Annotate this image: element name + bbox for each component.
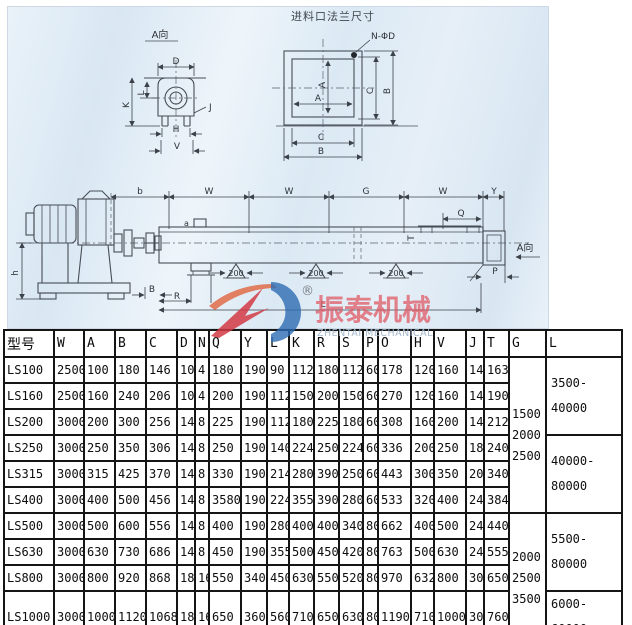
value-cell: 8: [195, 435, 209, 461]
value-cell: 384: [484, 487, 509, 513]
value-cell: 456: [146, 487, 177, 513]
support-dim-1: 200: [228, 269, 243, 278]
value-cell: 662: [378, 513, 411, 539]
value-cell: 600: [115, 513, 146, 539]
value-cell: 150: [289, 383, 314, 409]
model-cell: LS160: [4, 383, 54, 409]
motor: [34, 205, 76, 243]
value-cell: 650: [314, 591, 339, 625]
value-cell: 868: [146, 565, 177, 591]
value-cell: 214: [267, 461, 289, 487]
value-cell: 920: [115, 565, 146, 591]
value-cell: 533: [378, 487, 411, 513]
drawing-panel: A向 D L K: [7, 6, 549, 329]
value-cell: 555: [484, 539, 509, 565]
value-cell: 970: [378, 565, 411, 591]
value-cell: 240: [484, 435, 509, 461]
value-cell: 355: [267, 539, 289, 565]
value-cell: 270: [378, 383, 411, 409]
column-header-O-13: O: [378, 330, 411, 357]
spec-table: 型号WABCDNQYLKRSPOHVJTGL LS100250010018014…: [3, 329, 623, 625]
dim-label-w2: W: [285, 187, 294, 197]
dim-label-j: J: [208, 103, 212, 113]
view-a-title: A向: [152, 28, 169, 41]
value-cell: 390: [314, 461, 339, 487]
value-cell: 8: [195, 513, 209, 539]
value-cell: 560: [267, 591, 289, 625]
value-cell: 190: [484, 383, 509, 409]
value-cell: 200: [84, 409, 115, 435]
column-header-N-5: N: [195, 330, 209, 357]
value-cell: 3000: [54, 435, 84, 461]
model-cell: LS250: [4, 435, 54, 461]
header-row: 型号WABCDNQYLKRSPOHVJTGL: [4, 330, 622, 357]
value-cell: 336: [378, 435, 411, 461]
l-group-cell: 6000-60000: [546, 591, 622, 625]
table-row-LS500: LS50030005006005561484001902804004003408…: [4, 513, 622, 539]
support-dim-2: 200: [308, 269, 323, 278]
value-cell: 190: [241, 513, 267, 539]
column-header-model: 型号: [4, 330, 54, 357]
value-cell: 250: [434, 435, 466, 461]
end-view-drawing: A向 D L K: [122, 28, 212, 154]
value-cell: 340: [484, 461, 509, 487]
value-cell: 650: [209, 591, 241, 625]
value-cell: 330: [209, 461, 241, 487]
column-header-J-16: J: [466, 330, 484, 357]
dim-label-b-bottom: B: [318, 147, 324, 157]
engineering-drawing: A向 D L K: [8, 7, 548, 328]
value-cell: 212: [484, 409, 509, 435]
value-cell: 425: [115, 461, 146, 487]
value-cell: 190: [241, 435, 267, 461]
value-cell: 178: [378, 357, 411, 383]
support-saddle-2: 200: [289, 264, 343, 278]
model-cell: LS1000: [4, 591, 54, 625]
value-cell: 18: [177, 565, 195, 591]
value-cell: 250: [209, 435, 241, 461]
value-cell: 2500: [54, 357, 84, 383]
value-cell: 60: [363, 409, 378, 435]
value-cell: 14: [466, 383, 484, 409]
value-cell: 800: [434, 565, 466, 591]
value-cell: 163: [484, 357, 509, 383]
value-cell: 200: [209, 383, 241, 409]
column-header-Q-6: Q: [209, 330, 241, 357]
value-cell: 14: [177, 435, 195, 461]
screenshot-root: A向 D L K: [0, 0, 632, 625]
value-cell: 500: [84, 513, 115, 539]
value-cell: 24: [466, 487, 484, 513]
value-cell: 224: [289, 435, 314, 461]
dim-label-c-right: C: [366, 88, 376, 94]
value-cell: 60: [363, 383, 378, 409]
dim-label-b-right: B: [383, 88, 393, 94]
value-cell: 18: [177, 591, 195, 625]
value-cell: 200: [314, 383, 339, 409]
value-cell: 18: [466, 435, 484, 461]
value-cell: 140: [267, 435, 289, 461]
value-cell: 180: [115, 357, 146, 383]
dim-label-c-bottom: C: [318, 133, 324, 143]
value-cell: 30: [466, 591, 484, 625]
column-header-C-3: C: [146, 330, 177, 357]
value-cell: 400: [289, 513, 314, 539]
value-cell: 420: [339, 539, 363, 565]
value-cell: 14: [177, 487, 195, 513]
value-cell: 550: [209, 565, 241, 591]
value-cell: 350: [434, 461, 466, 487]
l-group-cell: 5500-80000: [546, 513, 622, 591]
dim-label-h-width: H: [173, 125, 180, 135]
value-cell: 120: [411, 357, 434, 383]
flange-drawing: 进料口法兰尺寸 N-ΦD A A C B: [272, 9, 418, 161]
value-cell: 20: [466, 461, 484, 487]
value-cell: 1120: [115, 591, 146, 625]
dim-label-a-horizontal: A: [315, 94, 322, 104]
value-cell: 190: [241, 487, 267, 513]
value-cell: 340: [339, 513, 363, 539]
value-cell: 90: [267, 357, 289, 383]
model-cell: LS200: [4, 409, 54, 435]
value-cell: 3000: [54, 565, 84, 591]
value-cell: 60: [363, 461, 378, 487]
value-cell: 80: [363, 513, 378, 539]
value-cell: 60: [363, 487, 378, 513]
dim-label-b2: B: [149, 285, 155, 295]
model-cell: LS800: [4, 565, 54, 591]
value-cell: 8: [195, 409, 209, 435]
value-cell: 225: [209, 409, 241, 435]
dim-label-v: V: [174, 142, 181, 152]
dim-label-t: T: [407, 235, 417, 242]
column-header-K-9: K: [289, 330, 314, 357]
value-cell: 1068: [146, 591, 177, 625]
value-cell: 1190: [378, 591, 411, 625]
bolt-hole-label: N-ΦD: [371, 32, 395, 42]
value-cell: 400: [209, 513, 241, 539]
value-cell: 3000: [54, 461, 84, 487]
value-cell: 3000: [54, 487, 84, 513]
dim-label-l: L: [137, 90, 147, 95]
value-cell: 224: [267, 487, 289, 513]
value-cell: 730: [115, 539, 146, 565]
value-cell: 1000: [434, 591, 466, 625]
value-cell: 10: [177, 357, 195, 383]
value-cell: 710: [411, 591, 434, 625]
value-cell: 14: [177, 409, 195, 435]
value-cell: 400: [434, 487, 466, 513]
value-cell: 60: [363, 357, 378, 383]
value-cell: 112: [289, 357, 314, 383]
value-cell: 190: [241, 461, 267, 487]
column-header-B-2: B: [115, 330, 146, 357]
value-cell: 355: [289, 487, 314, 513]
value-cell: 360: [241, 591, 267, 625]
value-cell: 250: [339, 461, 363, 487]
g-group-cell: 200025003500: [509, 513, 546, 625]
model-cell: LS400: [4, 487, 54, 513]
l-group-cell: 3500-40000: [546, 357, 622, 435]
value-cell: 320: [411, 487, 434, 513]
column-header-D-4: D: [177, 330, 195, 357]
value-cell: 160: [434, 357, 466, 383]
value-cell: 8: [195, 487, 209, 513]
column-header-L-19: L: [546, 330, 622, 357]
value-cell: 340: [241, 565, 267, 591]
value-cell: 200: [434, 409, 466, 435]
column-header-G-18: G: [509, 330, 546, 357]
value-cell: 180: [339, 409, 363, 435]
value-cell: 650: [484, 565, 509, 591]
support-saddle-3: 200: [369, 264, 423, 278]
value-cell: 190: [241, 357, 267, 383]
model-cell: LS315: [4, 461, 54, 487]
dim-label-d: D: [173, 57, 180, 67]
column-header-V-15: V: [434, 330, 466, 357]
value-cell: 450: [314, 539, 339, 565]
value-cell: 24: [466, 513, 484, 539]
value-cell: 250: [314, 435, 339, 461]
dim-label-q: Q: [457, 209, 464, 219]
value-cell: 440: [484, 513, 509, 539]
value-cell: 160: [434, 383, 466, 409]
value-cell: 190: [241, 539, 267, 565]
value-cell: 14: [466, 357, 484, 383]
model-cell: LS630: [4, 539, 54, 565]
column-header-L-8: L: [267, 330, 289, 357]
value-cell: 686: [146, 539, 177, 565]
value-cell: 60: [363, 435, 378, 461]
value-cell: 14: [177, 461, 195, 487]
value-cell: 763: [378, 539, 411, 565]
value-cell: 14: [466, 409, 484, 435]
dim-label-h-height: h: [11, 270, 21, 276]
value-cell: 80: [363, 565, 378, 591]
outlet-flange: [483, 231, 505, 265]
value-cell: 8: [195, 461, 209, 487]
column-header-R-10: R: [314, 330, 339, 357]
dim-label-r: R: [174, 292, 180, 302]
table-row-LS100: LS10025001001801461041801909011218011260…: [4, 357, 622, 383]
discharge-spout: [191, 263, 211, 271]
value-cell: 146: [146, 357, 177, 383]
value-cell: 315: [84, 461, 115, 487]
value-cell: 1000: [84, 591, 115, 625]
value-cell: 400: [314, 513, 339, 539]
value-cell: 3000: [54, 409, 84, 435]
value-cell: 400: [84, 487, 115, 513]
value-cell: 450: [209, 539, 241, 565]
value-cell: 556: [146, 513, 177, 539]
value-cell: 256: [146, 409, 177, 435]
value-cell: 710: [289, 591, 314, 625]
value-cell: 630: [339, 591, 363, 625]
flange-title: 进料口法兰尺寸: [291, 9, 375, 23]
value-cell: 16: [195, 565, 209, 591]
value-cell: 3580: [209, 487, 241, 513]
dim-label-l-total: L: [320, 300, 325, 310]
value-cell: 450: [267, 565, 289, 591]
value-cell: 4: [195, 383, 209, 409]
column-header-P-12: P: [363, 330, 378, 357]
model-cell: LS500: [4, 513, 54, 539]
value-cell: 400: [411, 513, 434, 539]
value-cell: 500: [411, 539, 434, 565]
value-cell: 190: [241, 409, 267, 435]
column-header-A-1: A: [84, 330, 115, 357]
gearbox: [78, 199, 114, 245]
base-frame: [38, 283, 130, 293]
dim-label-w3: W: [439, 187, 448, 197]
value-cell: 760: [484, 591, 509, 625]
value-cell: 500: [434, 513, 466, 539]
value-cell: 500: [289, 539, 314, 565]
dim-label-p: P: [492, 267, 498, 277]
value-cell: 112: [267, 409, 289, 435]
value-cell: 3000: [54, 513, 84, 539]
value-cell: 240: [115, 383, 146, 409]
value-cell: 3000: [54, 591, 84, 625]
value-cell: 800: [84, 565, 115, 591]
value-cell: 3000: [54, 539, 84, 565]
g-group-cell: 150020002500: [509, 357, 546, 513]
value-cell: 632: [411, 565, 434, 591]
value-cell: 100: [84, 357, 115, 383]
value-cell: 390: [314, 487, 339, 513]
value-cell: 190: [241, 383, 267, 409]
support-dim-3: 200: [388, 269, 403, 278]
value-cell: 120: [411, 383, 434, 409]
value-cell: 80: [363, 591, 378, 625]
column-header-Y-7: Y: [241, 330, 267, 357]
column-header-T-17: T: [484, 330, 509, 357]
inlet-mark-label: a: [184, 219, 189, 228]
value-cell: 225: [314, 409, 339, 435]
value-cell: 14: [177, 513, 195, 539]
value-cell: 160: [84, 383, 115, 409]
value-cell: 224: [339, 435, 363, 461]
value-cell: 180: [209, 357, 241, 383]
value-cell: 443: [378, 461, 411, 487]
value-cell: 550: [314, 565, 339, 591]
value-cell: 30: [466, 565, 484, 591]
value-cell: 206: [146, 383, 177, 409]
value-cell: 24: [466, 539, 484, 565]
model-cell: LS100: [4, 357, 54, 383]
dim-label-k: K: [122, 101, 132, 108]
value-cell: 4: [195, 357, 209, 383]
value-cell: 180: [289, 409, 314, 435]
dim-label-b-small: b: [137, 187, 143, 197]
value-cell: 630: [289, 565, 314, 591]
value-cell: 80: [363, 539, 378, 565]
value-cell: 630: [84, 539, 115, 565]
dim-label-a-vertical: A: [318, 81, 328, 88]
inlet-block: [194, 219, 206, 227]
dim-label-y: Y: [490, 187, 497, 197]
column-header-W-0: W: [54, 330, 84, 357]
value-cell: 2500: [54, 383, 84, 409]
column-header-H-14: H: [411, 330, 434, 357]
value-cell: 630: [434, 539, 466, 565]
value-cell: 112: [267, 383, 289, 409]
side-view-drawing: a b W W G W: [11, 187, 540, 313]
l-group-cell: 40000-80000: [546, 435, 622, 513]
column-header-S-11: S: [339, 330, 363, 357]
value-cell: 308: [378, 409, 411, 435]
value-cell: 300: [411, 461, 434, 487]
value-cell: 16: [195, 591, 209, 625]
value-cell: 300: [115, 409, 146, 435]
value-cell: 150: [339, 383, 363, 409]
bolt-hole: [351, 52, 357, 58]
value-cell: 250: [84, 435, 115, 461]
value-cell: 370: [146, 461, 177, 487]
value-cell: 280: [339, 487, 363, 513]
value-cell: 8: [195, 539, 209, 565]
support-saddle-1: 200: [209, 264, 263, 278]
value-cell: 200: [411, 435, 434, 461]
value-cell: 160: [411, 409, 434, 435]
value-cell: 14: [177, 539, 195, 565]
view-a-arrow-label: A向: [517, 241, 534, 254]
value-cell: 500: [115, 487, 146, 513]
value-cell: 306: [146, 435, 177, 461]
value-cell: 350: [115, 435, 146, 461]
value-cell: 520: [339, 565, 363, 591]
value-cell: 280: [267, 513, 289, 539]
value-cell: 10: [177, 383, 195, 409]
value-cell: 112: [339, 357, 363, 383]
dim-label-g: G: [363, 187, 370, 197]
value-cell: 180: [314, 357, 339, 383]
value-cell: 280: [289, 461, 314, 487]
dim-label-w1: W: [205, 187, 214, 197]
